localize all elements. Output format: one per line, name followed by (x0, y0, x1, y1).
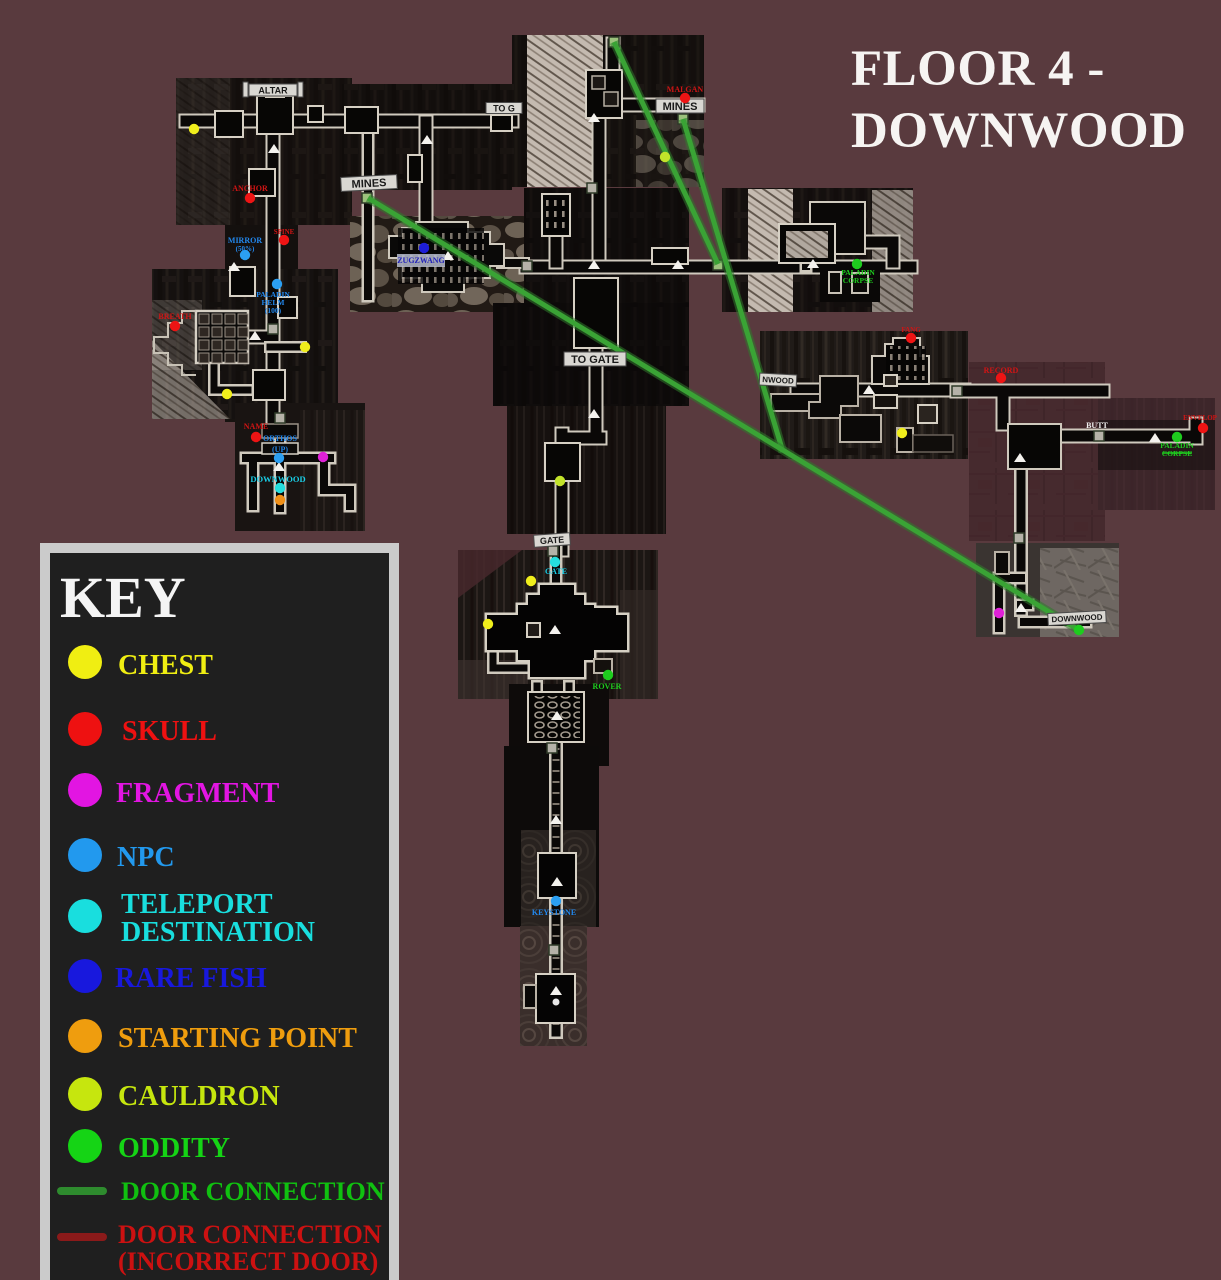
svg-text:(100): (100) (265, 306, 282, 315)
svg-text:DOWNWOOD: DOWNWOOD (851, 103, 1187, 159)
svg-text:KEYSTONE: KEYSTONE (532, 908, 576, 917)
svg-text:FRAGMENT: FRAGMENT (116, 778, 280, 809)
svg-text:ZUGZWANG: ZUGZWANG (397, 256, 445, 265)
svg-text:NWOOD: NWOOD (762, 375, 794, 386)
svg-text:FANG: FANG (901, 326, 921, 334)
svg-text:MINES: MINES (351, 177, 386, 191)
svg-text:CHEST: CHEST (118, 650, 213, 681)
svg-text:(INCORRECT DOOR): (INCORRECT DOOR) (118, 1247, 378, 1276)
svg-text:MALGAN: MALGAN (667, 85, 704, 94)
svg-text:GATE: GATE (545, 567, 567, 576)
svg-text:DOOR CONNECTION: DOOR CONNECTION (118, 1220, 382, 1249)
svg-text:STARTING POINT: STARTING POINT (118, 1023, 357, 1054)
svg-text:SPINE: SPINE (274, 228, 295, 236)
svg-text:NPC: NPC (117, 842, 175, 873)
svg-text:ANCHOR: ANCHOR (232, 184, 268, 193)
svg-text:RARE FISH: RARE FISH (115, 963, 267, 994)
svg-text:(50%): (50%) (236, 245, 255, 253)
svg-text:DOWNWOOD: DOWNWOOD (250, 474, 305, 484)
svg-text:CAULDRON: CAULDRON (118, 1081, 280, 1112)
svg-text:NAME: NAME (244, 422, 268, 431)
svg-text:ODDITY: ODDITY (118, 1133, 230, 1164)
svg-text:DESTINATION: DESTINATION (121, 917, 315, 948)
svg-text:KEY: KEY (60, 565, 186, 630)
svg-text:FLOOR 4 -: FLOOR 4 - (851, 41, 1105, 97)
svg-text:(UP): (UP) (272, 445, 288, 454)
svg-text:ALTAR: ALTAR (258, 85, 288, 95)
svg-text:ROVER: ROVER (593, 682, 622, 691)
svg-text:ENVELOP: ENVELOP (1183, 414, 1218, 422)
svg-text:DOOR CONNECTION: DOOR CONNECTION (121, 1177, 385, 1206)
svg-text:GATE: GATE (540, 534, 565, 546)
svg-text:MIRROR: MIRROR (228, 236, 262, 245)
svg-text:BREATH: BREATH (158, 312, 192, 321)
svg-text:TELEPORT: TELEPORT (121, 889, 273, 920)
svg-text:SKULL: SKULL (122, 716, 217, 747)
svg-text:BUTT: BUTT (1086, 421, 1108, 430)
svg-text:RECORD: RECORD (984, 366, 1019, 375)
svg-text:TO GATE: TO GATE (571, 354, 619, 366)
svg-text:ORTHOS: ORTHOS (263, 434, 298, 443)
svg-text:TO G: TO G (493, 103, 515, 113)
svg-text:CORPSE: CORPSE (843, 276, 873, 285)
svg-text:MINES: MINES (663, 101, 698, 113)
